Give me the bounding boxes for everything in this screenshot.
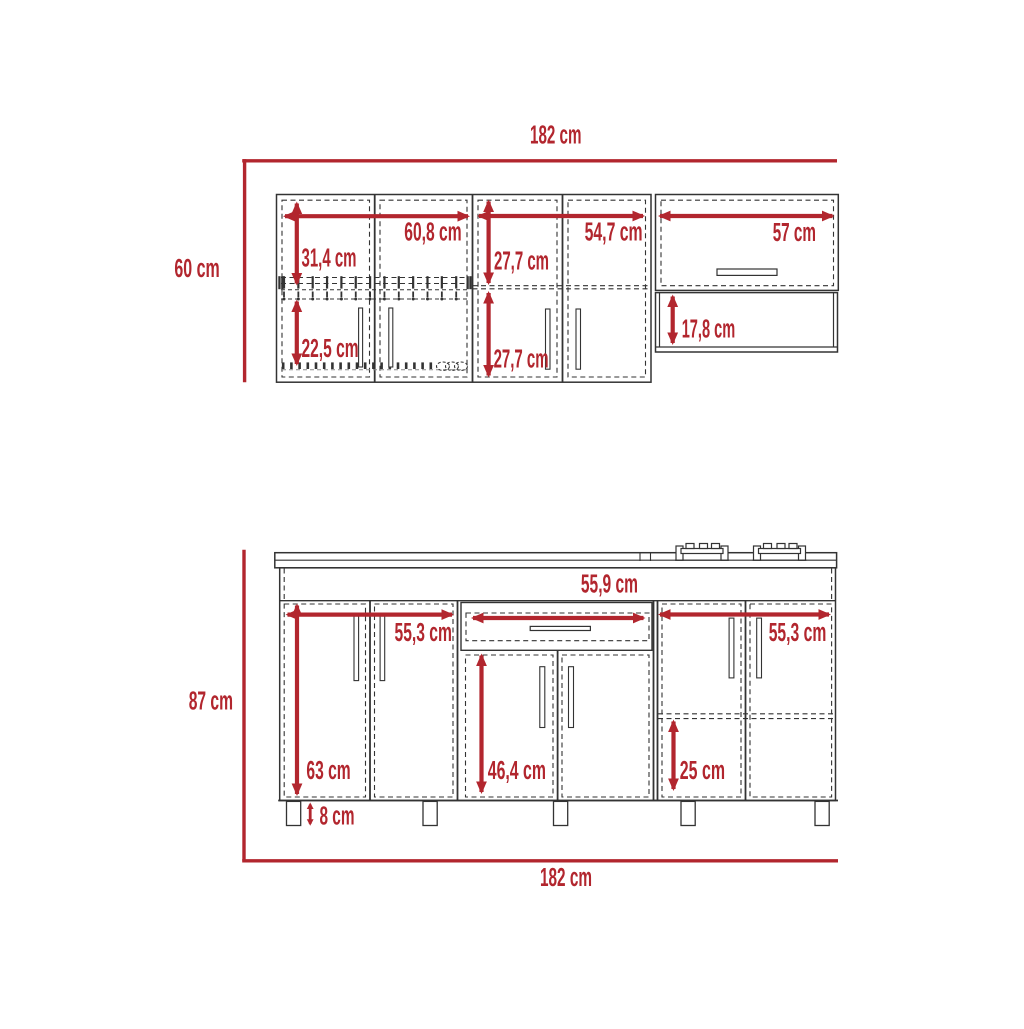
svg-text:27,7 cm: 27,7 cm [494,248,549,276]
svg-text:22,5 cm: 22,5 cm [302,335,359,363]
svg-text:46,4 cm: 46,4 cm [488,757,546,785]
svg-text:182 cm: 182 cm [530,122,582,150]
svg-text:25 cm: 25 cm [680,757,725,785]
svg-text:87 cm: 87 cm [189,688,233,716]
svg-text:31,4 cm: 31,4 cm [302,245,357,273]
svg-text:60,8 cm: 60,8 cm [404,218,461,246]
svg-text:63 cm: 63 cm [306,757,350,785]
svg-text:57 cm: 57 cm [773,219,816,247]
svg-text:27,7 cm: 27,7 cm [494,346,549,374]
svg-text:182 cm: 182 cm [540,864,592,892]
svg-text:8 cm: 8 cm [320,802,355,830]
svg-text:55,3 cm: 55,3 cm [769,619,827,647]
svg-text:55,3 cm: 55,3 cm [395,619,452,647]
svg-text:54,7 cm: 54,7 cm [585,219,643,247]
svg-text:17,8 cm: 17,8 cm [682,316,736,344]
svg-text:60 cm: 60 cm [174,255,219,283]
svg-text:55,9 cm: 55,9 cm [581,571,638,599]
